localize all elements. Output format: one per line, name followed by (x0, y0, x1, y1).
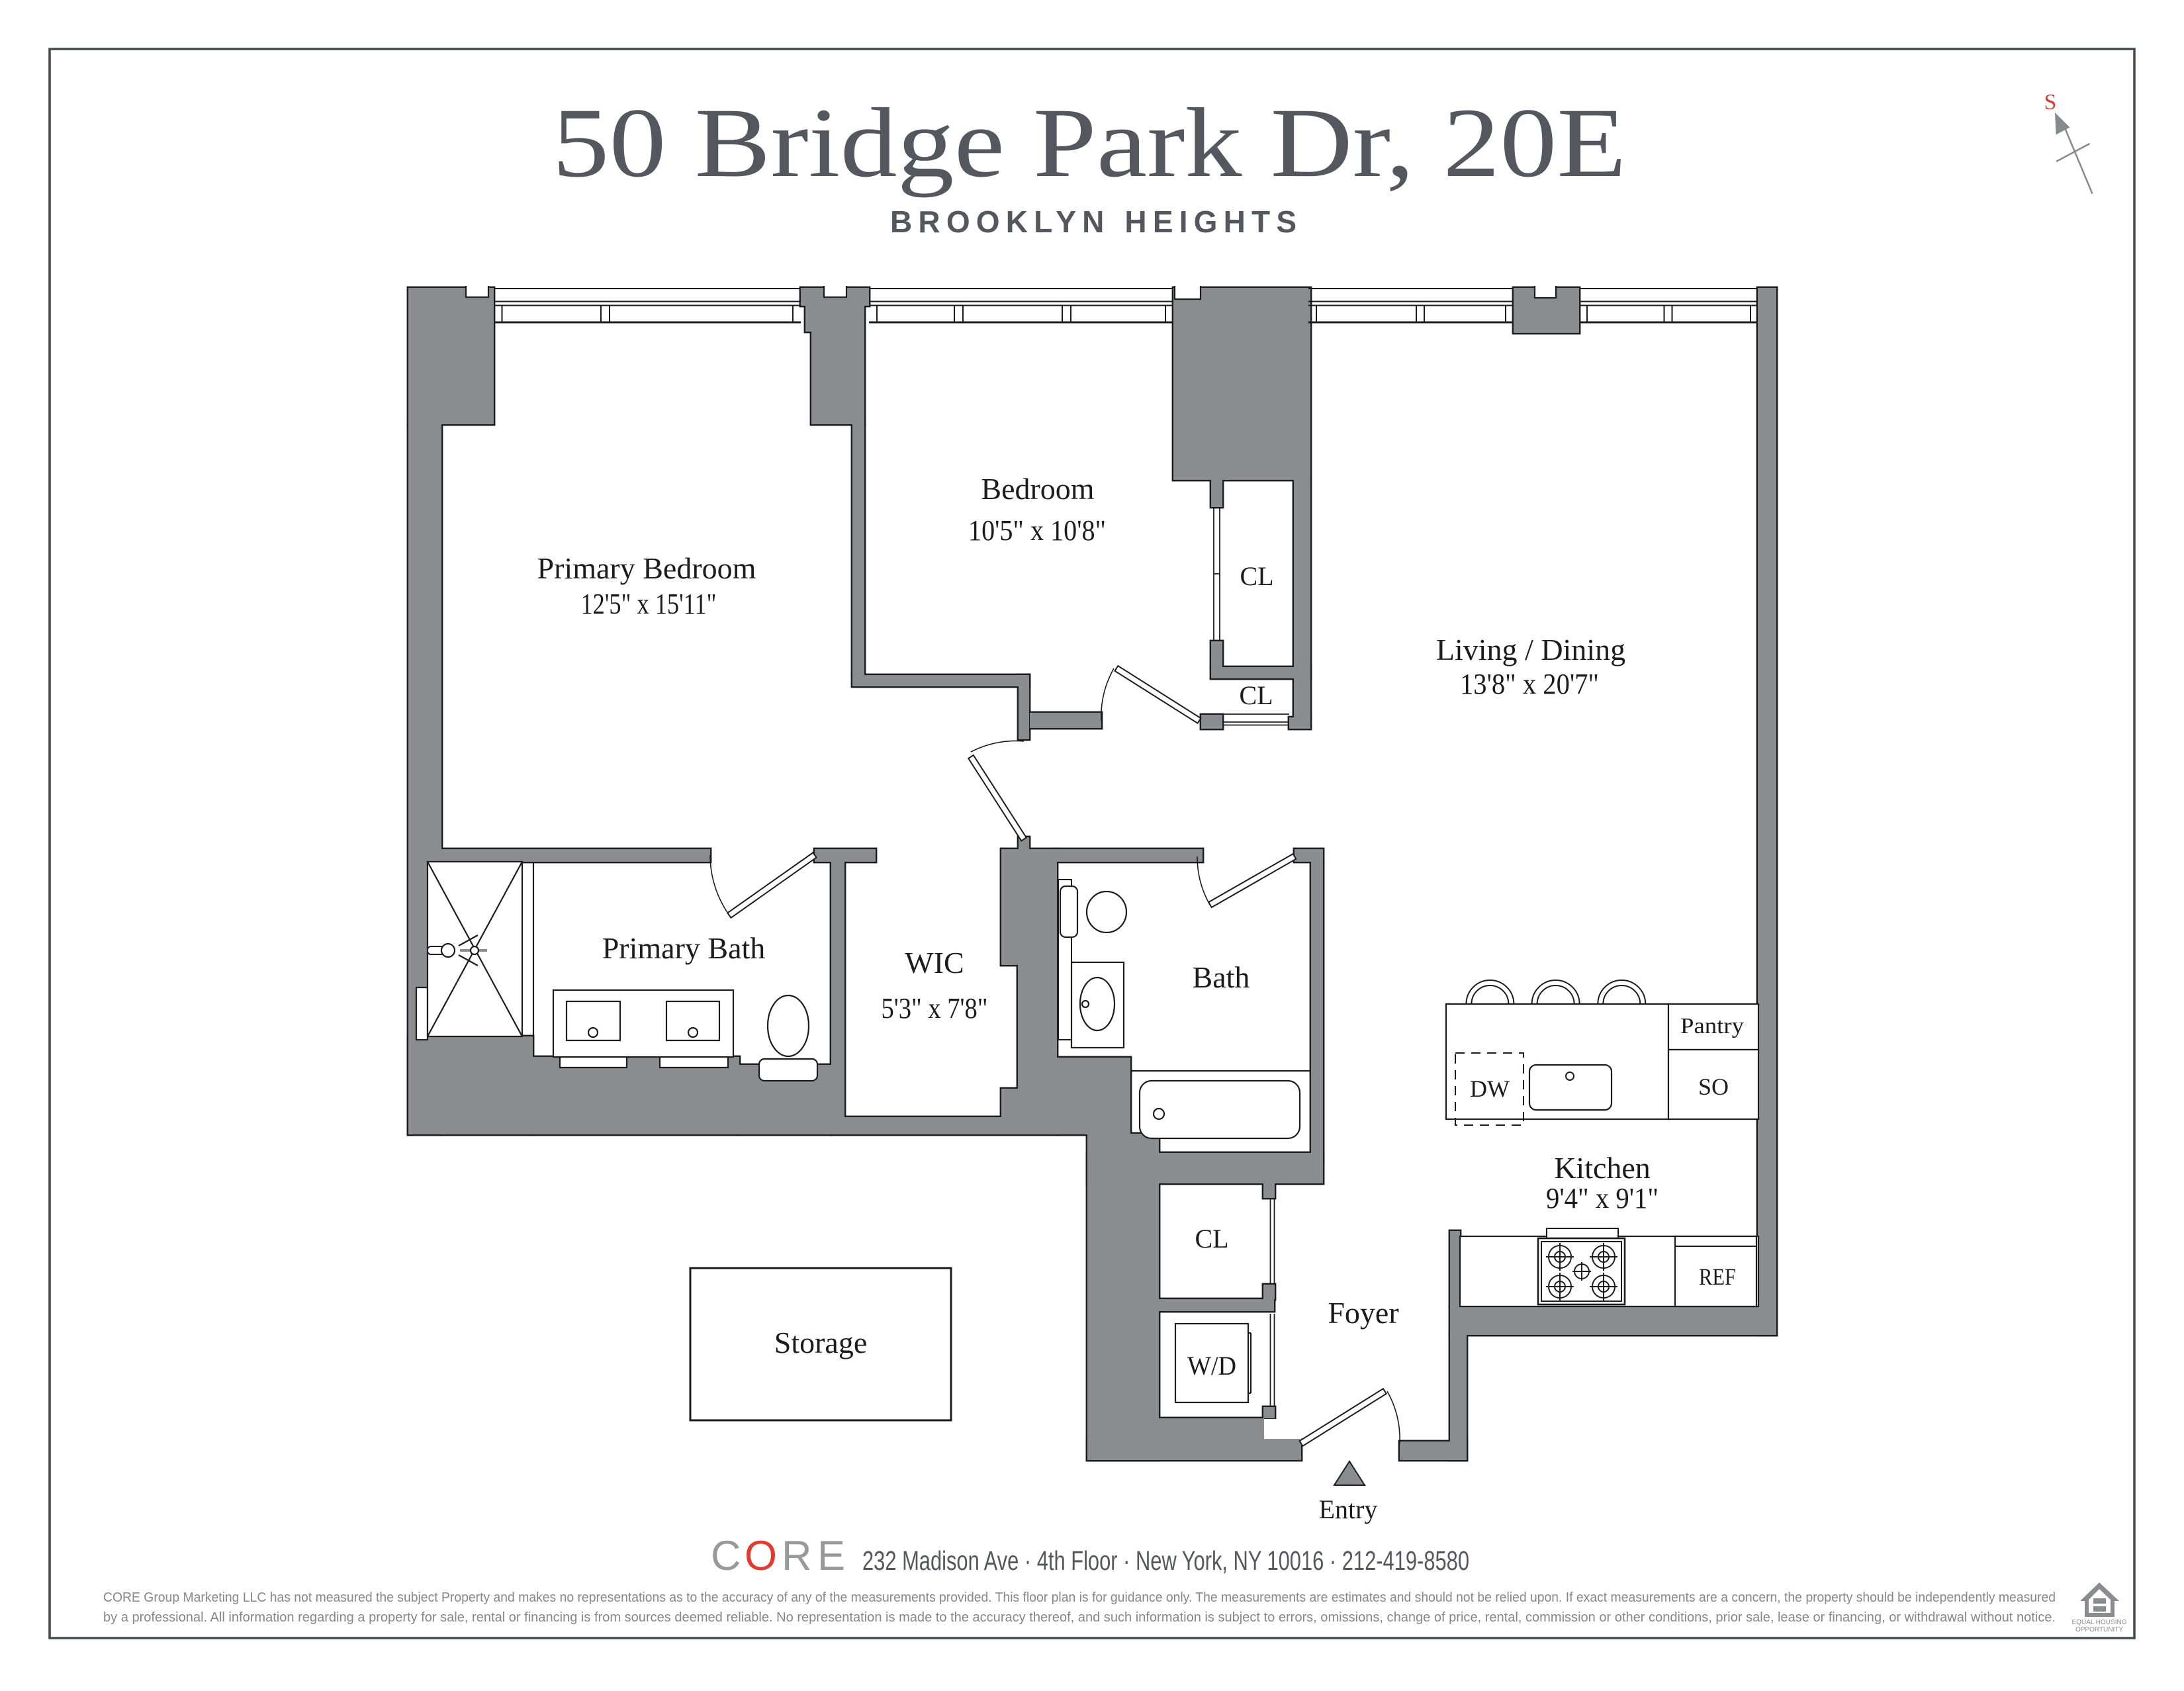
svg-text:C: C (711, 1533, 741, 1579)
svg-text:BROOKLYN HEIGHTS: BROOKLYN HEIGHTS (890, 205, 1297, 239)
svg-text:Bedroom: Bedroom (981, 472, 1094, 506)
svg-text:O: O (745, 1533, 777, 1579)
svg-text:OPPORTUNITY: OPPORTUNITY (2075, 1626, 2123, 1633)
svg-text:232 Madison Ave · 4th Floor ·: 232 Madison Ave · 4th Floor · New York, … (862, 1545, 1469, 1576)
svg-text:WIC: WIC (905, 946, 964, 980)
svg-text:E: E (817, 1533, 845, 1579)
svg-text:10'5" x 10'8": 10'5" x 10'8" (968, 514, 1106, 547)
svg-text:50 Bridge Park Dr, 20E: 50 Bridge Park Dr, 20E (553, 88, 1627, 198)
svg-text:Foyer: Foyer (1328, 1296, 1398, 1330)
svg-text:Primary Bath: Primary Bath (602, 931, 766, 965)
svg-text:5'3" x 7'8": 5'3" x 7'8" (882, 992, 988, 1025)
svg-text:SO: SO (1698, 1074, 1729, 1100)
svg-text:Storage: Storage (774, 1326, 868, 1359)
svg-text:Entry: Entry (1319, 1494, 1378, 1524)
svg-text:Bath: Bath (1193, 960, 1250, 994)
svg-text:Kitchen: Kitchen (1554, 1151, 1651, 1185)
svg-text:DW: DW (1470, 1075, 1510, 1102)
svg-text:Living / Dining: Living / Dining (1436, 633, 1625, 666)
svg-text:13'8" x 20'7": 13'8" x 20'7" (1460, 668, 1599, 700)
svg-text:S: S (2044, 90, 2057, 114)
svg-text:9'4" x 9'1": 9'4" x 9'1" (1546, 1182, 1659, 1214)
svg-text:R: R (782, 1533, 812, 1579)
svg-text:CL: CL (1239, 680, 1273, 710)
svg-text:REF: REF (1699, 1263, 1736, 1290)
svg-text:CL: CL (1195, 1224, 1228, 1254)
svg-text:CL: CL (1240, 561, 1273, 591)
svg-text:EQUAL HOUSING: EQUAL HOUSING (2072, 1619, 2127, 1626)
svg-text:CORE Group Marketing LLC has n: CORE Group Marketing LLC has not measure… (103, 1590, 2056, 1605)
svg-text:by a professional. All informa: by a professional. All information regar… (103, 1610, 2056, 1625)
svg-text:Primary Bedroom: Primary Bedroom (537, 551, 756, 585)
svg-text:12'5" x 15'11": 12'5" x 15'11" (581, 588, 717, 620)
svg-text:Pantry: Pantry (1680, 1014, 1744, 1038)
svg-text:W/D: W/D (1187, 1351, 1236, 1381)
